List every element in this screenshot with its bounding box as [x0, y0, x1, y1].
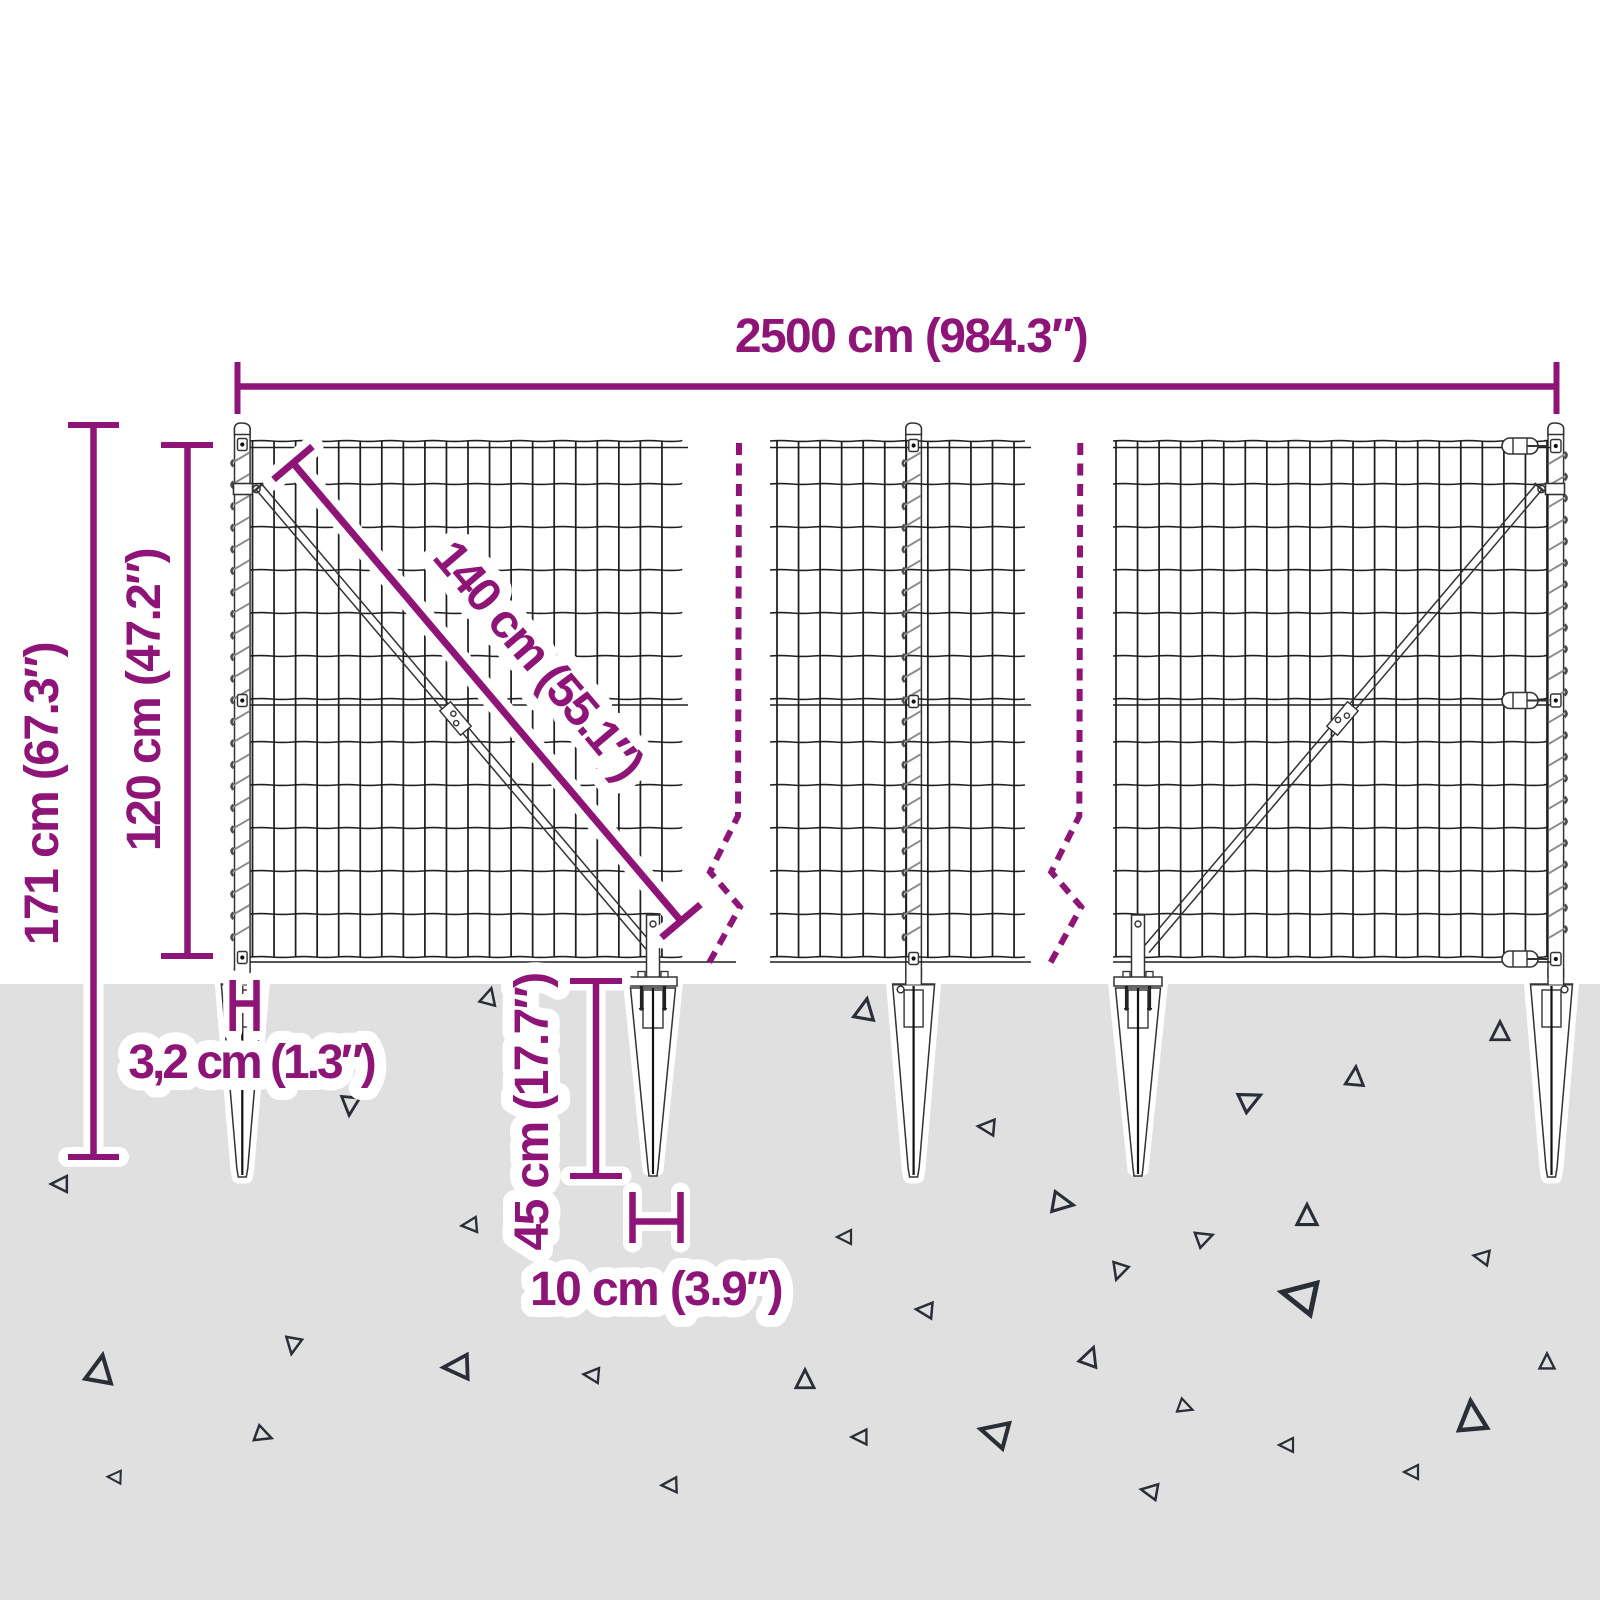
svg-text:45 cm (17.7″): 45 cm (17.7″): [506, 973, 559, 1250]
svg-text:10 cm (3.9″): 10 cm (3.9″): [530, 1263, 782, 1316]
svg-text:2500 cm (984.3″): 2500 cm (984.3″): [735, 310, 1087, 363]
svg-text:3,2 cm (1.3″): 3,2 cm (1.3″): [128, 1036, 374, 1089]
svg-text:120 cm (47.2″): 120 cm (47.2″): [118, 549, 171, 851]
svg-text:171 cm (67.3″): 171 cm (67.3″): [16, 643, 69, 945]
